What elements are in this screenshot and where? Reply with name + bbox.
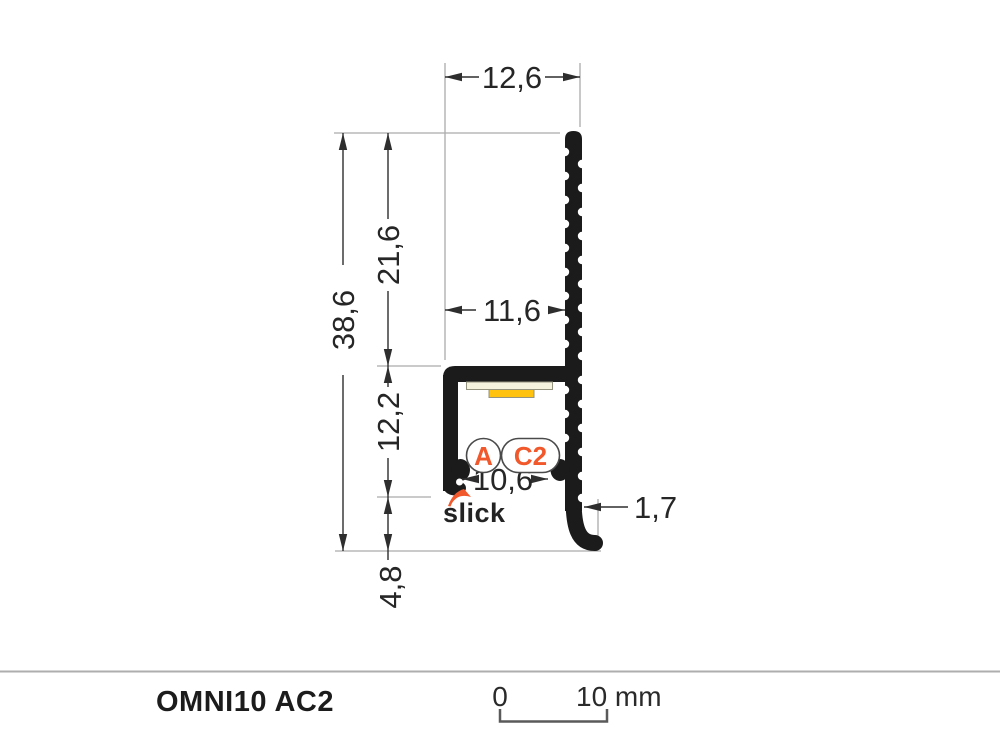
dim-wall-thickness-label: 1,7 — [634, 490, 677, 525]
technical-drawing: 12,6 11,6 21,6 38,6 — [0, 0, 1000, 750]
led-pcb — [467, 382, 553, 390]
dim-arrowhead — [384, 497, 392, 514]
dim-arrowhead — [384, 534, 392, 551]
dim-foot-height: 4,8 — [373, 497, 408, 609]
dim-body-width: 11,6 — [445, 293, 565, 328]
dim-overall-width: 12,6 — [445, 60, 580, 95]
dim-arrowhead — [548, 306, 565, 314]
variant-badges: A C2 — [467, 439, 560, 473]
dim-arrowhead — [339, 534, 347, 551]
profile-top-bar — [443, 366, 574, 382]
product-title: OMNI10 AC2 — [156, 686, 334, 718]
dim-arrowhead — [445, 306, 462, 314]
dim-arrowhead — [563, 73, 580, 81]
dim-arrowhead — [384, 349, 392, 366]
dim-arrowhead — [339, 133, 347, 150]
scale-end-label: 10 mm — [576, 681, 662, 712]
dim-overall-height: 38,6 — [326, 133, 361, 551]
drawing-page: 12,6 11,6 21,6 38,6 — [0, 0, 1000, 750]
badge-a-label: A — [474, 441, 493, 471]
scale-start-label: 0 — [492, 681, 508, 712]
dim-foot-height-label: 4,8 — [373, 565, 408, 608]
dim-upper-fin-height-label: 21,6 — [371, 225, 406, 285]
dim-arrowhead — [584, 503, 601, 511]
dim-upper-fin-height: 21,6 — [371, 133, 406, 366]
dim-arrowhead — [384, 366, 392, 383]
led-strip — [467, 382, 553, 398]
dim-arrowhead — [445, 73, 462, 81]
dim-channel-height: 12,2 — [371, 366, 406, 497]
brand-wordmark: slick — [443, 498, 506, 528]
dim-arrowhead — [384, 480, 392, 497]
footer: OMNI10 AC2 0 10 mm — [0, 672, 1000, 722]
dim-overall-height-label: 38,6 — [326, 290, 361, 350]
led-tape — [489, 390, 534, 398]
dim-channel-height-label: 12,2 — [371, 392, 406, 452]
profile-foot — [574, 498, 596, 543]
dim-body-width-label: 11,6 — [483, 293, 541, 328]
dim-overall-width-label: 12,6 — [482, 60, 542, 95]
badge-c2-label: C2 — [514, 441, 547, 471]
dim-arrowhead — [384, 133, 392, 150]
dim-arrowhead — [531, 475, 548, 483]
scale-bar: 0 10 mm — [492, 681, 661, 722]
